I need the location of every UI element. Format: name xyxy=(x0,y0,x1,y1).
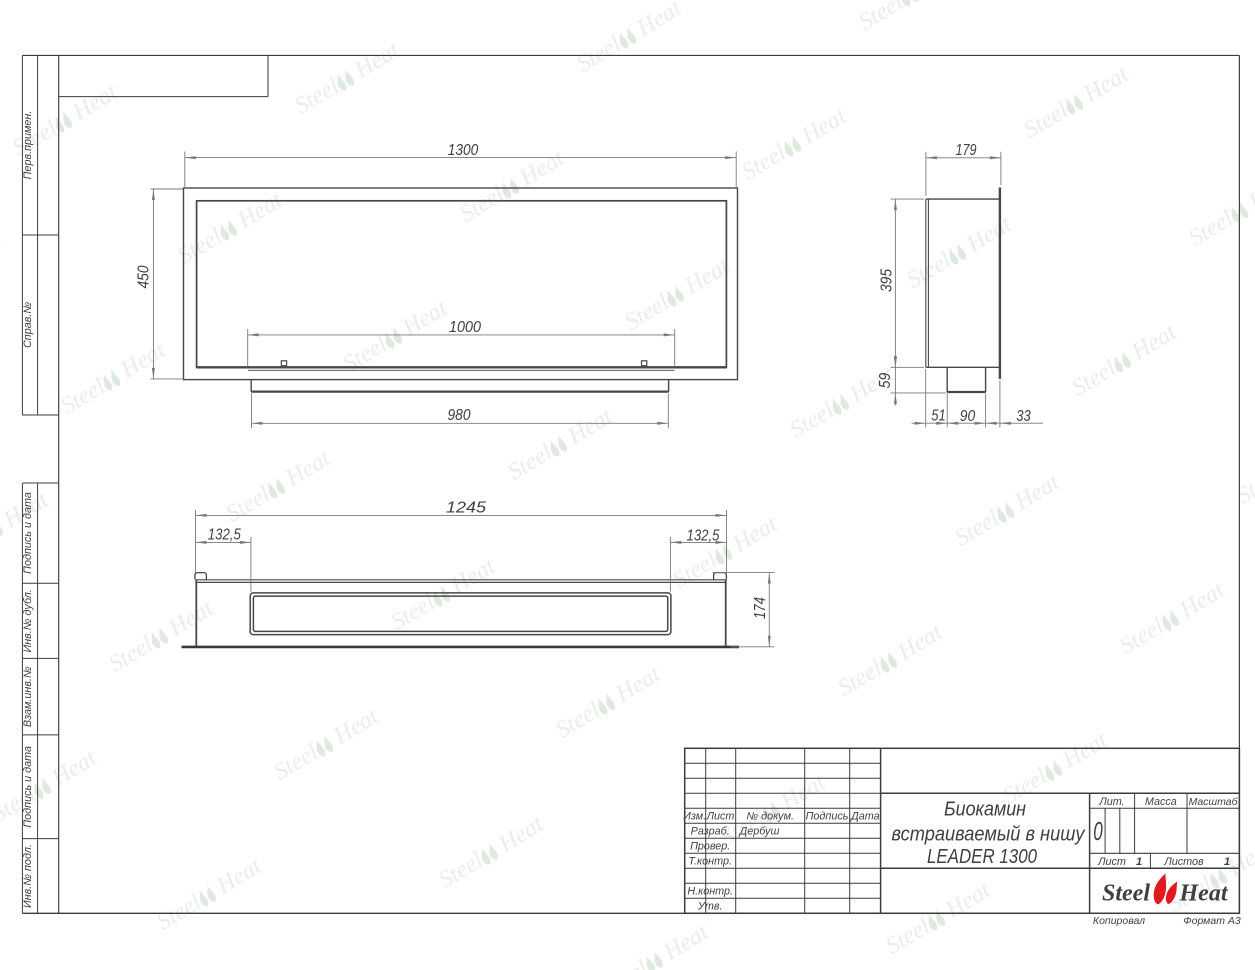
svg-text:Heat: Heat xyxy=(1179,881,1229,907)
svg-text:Масштаб: Масштаб xyxy=(1188,796,1238,808)
svg-text:Лит.: Лит. xyxy=(1098,796,1124,808)
svg-text:Перв.примен.: Перв.примен. xyxy=(22,111,34,180)
svg-text:980: 980 xyxy=(448,407,471,424)
svg-text:Т.контр.: Т.контр. xyxy=(688,856,732,868)
svg-text:LEADER 1300: LEADER 1300 xyxy=(927,846,1037,868)
svg-text:Лист: Лист xyxy=(1097,856,1126,868)
svg-text:Масса: Масса xyxy=(1145,796,1177,808)
svg-text:59: 59 xyxy=(877,373,894,389)
svg-text:395: 395 xyxy=(879,269,896,292)
svg-text:132,5: 132,5 xyxy=(208,526,241,543)
svg-text:1: 1 xyxy=(1136,856,1142,868)
svg-text:179: 179 xyxy=(956,142,977,159)
svg-text:Разраб.: Разраб. xyxy=(691,826,730,838)
svg-text:Лист: Лист xyxy=(706,811,735,823)
svg-text:Формат А3: Формат А3 xyxy=(1183,915,1241,927)
svg-text:1000: 1000 xyxy=(449,319,481,336)
svg-text:Листов: Листов xyxy=(1163,856,1204,868)
svg-text:Подпись: Подпись xyxy=(806,811,849,823)
svg-text:Подпись и дата: Подпись и дата xyxy=(22,746,34,828)
svg-text:Взам.инв.№: Взам.инв.№ xyxy=(22,666,34,727)
svg-text:Провер.: Провер. xyxy=(690,841,730,853)
svg-text:174: 174 xyxy=(752,597,769,619)
svg-text:Инв.№ дубл.: Инв.№ дубл. xyxy=(22,589,34,652)
svg-text:Подпись и дата: Подпись и дата xyxy=(22,492,34,574)
svg-text:Н.контр.: Н.контр. xyxy=(687,886,733,898)
svg-text:Изм.: Изм. xyxy=(683,811,706,823)
svg-text:Дата: Дата xyxy=(850,811,879,823)
svg-text:встраиваемый в нишу: встраиваемый в нишу xyxy=(892,824,1086,846)
svg-text:1: 1 xyxy=(1224,856,1230,868)
svg-text:Инв.№ подл.: Инв.№ подл. xyxy=(22,844,34,908)
svg-text:Утв.: Утв. xyxy=(697,901,723,913)
svg-text:132,5: 132,5 xyxy=(687,528,720,545)
svg-text:Дербуш: Дербуш xyxy=(739,826,780,838)
svg-text:1300: 1300 xyxy=(448,142,479,159)
svg-text:90: 90 xyxy=(960,408,976,425)
svg-text:450: 450 xyxy=(136,265,153,288)
svg-text:Steel: Steel xyxy=(1102,881,1150,907)
svg-text:Копировал: Копировал xyxy=(1093,915,1145,927)
svg-text:0: 0 xyxy=(1093,816,1103,846)
svg-text:Биокамин: Биокамин xyxy=(944,799,1026,821)
svg-text:1245: 1245 xyxy=(446,499,486,516)
svg-text:Справ.№: Справ.№ xyxy=(22,302,34,348)
svg-text:№ докум.: № докум. xyxy=(746,811,794,823)
svg-text:51: 51 xyxy=(931,407,946,424)
svg-text:33: 33 xyxy=(1016,408,1031,425)
